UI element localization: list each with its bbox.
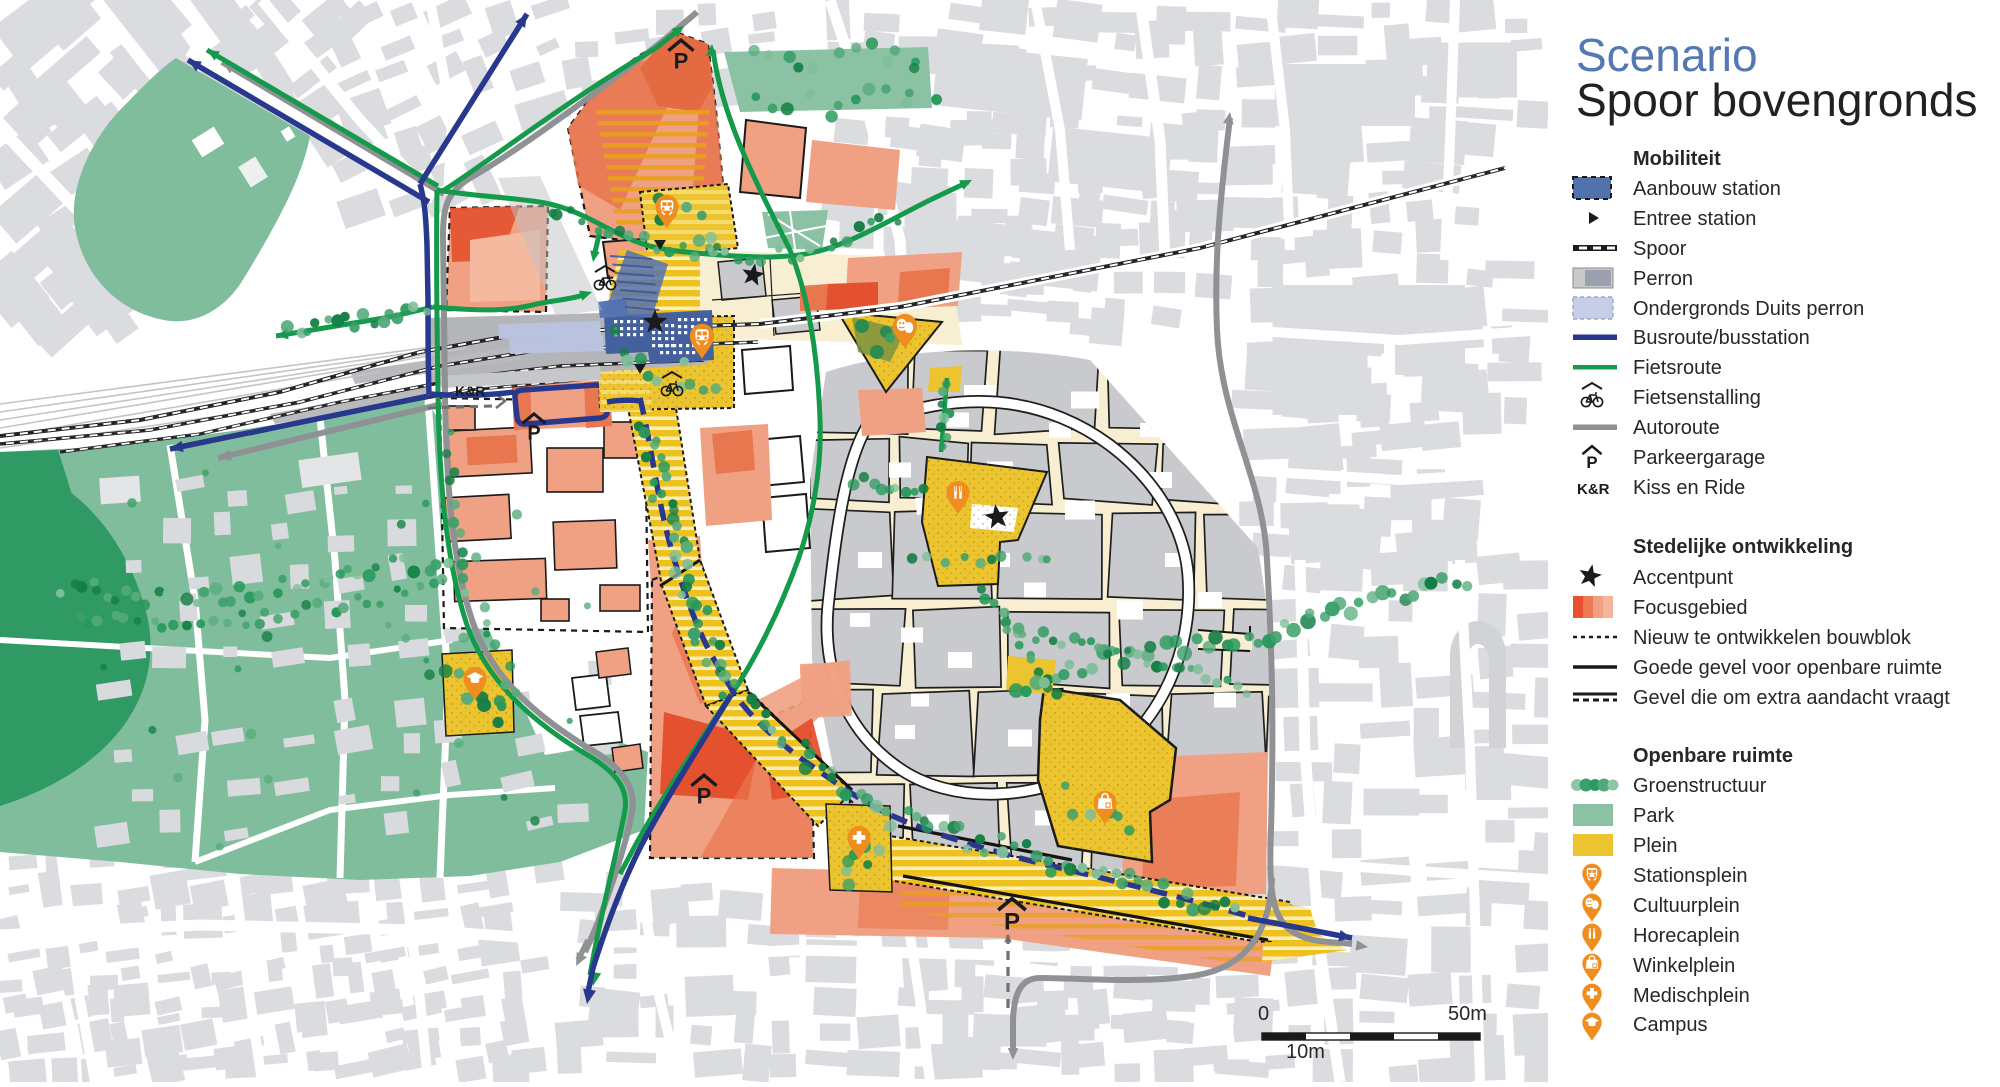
svg-text:K&R: K&R <box>455 383 485 399</box>
svg-text:Aanbouw station: Aanbouw station <box>1633 178 1781 200</box>
svg-text:Accentpunt: Accentpunt <box>1633 567 1734 589</box>
svg-text:Autoroute: Autoroute <box>1633 417 1720 439</box>
svg-text:Goede gevel voor openbare ruim: Goede gevel voor openbare ruimte <box>1633 657 1942 679</box>
svg-text:Stedelijke ontwikkeling: Stedelijke ontwikkeling <box>1633 536 1853 558</box>
svg-text:Focusgebied: Focusgebied <box>1633 597 1748 619</box>
svg-text:Gevel die om extra aandacht vr: Gevel die om extra aandacht vraagt <box>1633 687 1950 709</box>
svg-text:Ondergronds Duits perron: Ondergronds Duits perron <box>1633 298 1864 320</box>
svg-text:0: 0 <box>1258 1003 1269 1025</box>
svg-text:P: P <box>697 784 712 809</box>
svg-text:Park: Park <box>1633 805 1675 827</box>
svg-text:Plein: Plein <box>1633 835 1677 857</box>
svg-text:P: P <box>1586 453 1597 472</box>
svg-text:Spoor bovengronds: Spoor bovengronds <box>1576 74 1978 126</box>
svg-text:Perron: Perron <box>1633 268 1693 290</box>
svg-text:P: P <box>527 422 540 444</box>
svg-text:Medischplein: Medischplein <box>1633 985 1750 1007</box>
svg-text:P: P <box>674 49 689 74</box>
svg-text:Cultuurplein: Cultuurplein <box>1633 895 1740 917</box>
svg-text:Mobiliteit: Mobiliteit <box>1633 148 1721 170</box>
svg-text:Openbare ruimte: Openbare ruimte <box>1633 745 1793 767</box>
svg-text:Horecaplein: Horecaplein <box>1633 925 1740 947</box>
svg-text:Parkeergarage: Parkeergarage <box>1633 447 1765 469</box>
svg-text:P: P <box>1004 909 1020 936</box>
svg-text:Nieuw te ontwikkelen bouwblok: Nieuw te ontwikkelen bouwblok <box>1633 627 1912 649</box>
svg-text:50m: 50m <box>1448 1003 1487 1025</box>
svg-text:Campus: Campus <box>1633 1014 1707 1036</box>
svg-text:Entree station: Entree station <box>1633 208 1756 230</box>
svg-text:Spoor: Spoor <box>1633 238 1687 260</box>
svg-text:K&R: K&R <box>1577 481 1610 498</box>
svg-text:Fietsroute: Fietsroute <box>1633 357 1722 379</box>
svg-text:Busroute/busstation: Busroute/busstation <box>1633 327 1810 349</box>
svg-text:Winkelplein: Winkelplein <box>1633 955 1735 977</box>
svg-text:Fietsenstalling: Fietsenstalling <box>1633 387 1761 409</box>
svg-text:Stationsplein: Stationsplein <box>1633 865 1748 887</box>
svg-text:Groenstructuur: Groenstructuur <box>1633 775 1767 797</box>
svg-text:Kiss en Ride: Kiss en Ride <box>1633 477 1745 499</box>
svg-text:10m: 10m <box>1286 1041 1325 1063</box>
